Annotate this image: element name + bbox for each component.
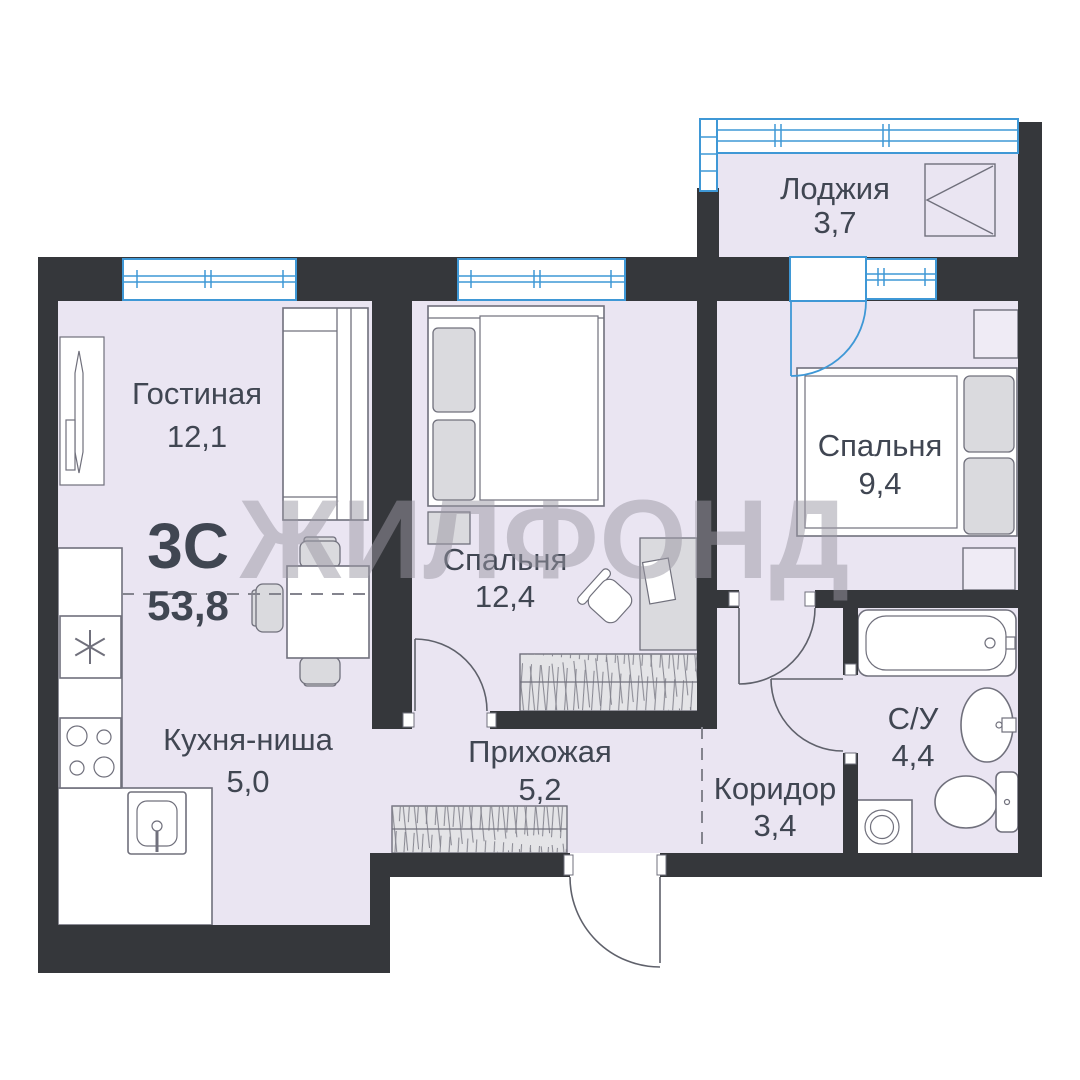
kitchen-sink-icon — [128, 792, 186, 854]
pillow-icon — [433, 328, 475, 412]
loggia-area: 3,7 — [813, 205, 856, 240]
bathroom-area: 4,4 — [891, 738, 934, 773]
washing-machine-icon — [852, 800, 912, 855]
tv-stand-icon — [66, 420, 75, 470]
living-room-label: Гостиная — [132, 376, 262, 411]
kitchen-area: 5,0 — [226, 764, 269, 799]
wall-loggia-left — [697, 188, 719, 301]
plan-total-area: 53,8 — [147, 582, 229, 629]
bathtub-icon — [858, 610, 1016, 676]
entrance-door — [564, 855, 666, 967]
hallway-area: 5,2 — [518, 772, 561, 807]
stove-icon — [60, 718, 121, 788]
loggia-glazing-left — [700, 119, 717, 191]
wall-right — [1018, 122, 1042, 877]
wall-bottom-left — [38, 925, 390, 973]
tv-icon — [75, 351, 83, 473]
hallway-wardrobe-icon — [392, 806, 567, 853]
wall-left — [38, 257, 58, 973]
balcony-window — [866, 259, 936, 299]
plan-type-label: 3С — [147, 510, 229, 582]
wall-bathroom-left-lower — [843, 753, 858, 853]
corridor-label: Коридор — [714, 771, 836, 806]
living-room-window — [123, 259, 296, 300]
loggia-glazing-top — [700, 119, 1018, 153]
hallway-label: Прихожая — [468, 734, 612, 769]
bed-icon — [428, 306, 604, 506]
bedroom2-area: 9,4 — [858, 466, 901, 501]
loggia-label: Лоджия — [780, 171, 890, 206]
chair-icon — [300, 657, 340, 684]
toilet-icon — [935, 772, 1018, 832]
bathroom-label: С/У — [888, 701, 939, 736]
nightstand-icon — [974, 310, 1018, 358]
pillow-icon — [964, 458, 1014, 534]
bedroom1-window — [458, 259, 625, 300]
pillow-icon — [964, 376, 1014, 452]
wall-bottom-right-a — [370, 853, 570, 877]
nightstand-icon — [963, 548, 1015, 590]
living-room-area: 12,1 — [167, 419, 227, 454]
wall-bedroom1-bottom — [490, 711, 697, 729]
wall-bottom-right-b — [660, 853, 1042, 877]
kitchen-label: Кухня-ниша — [163, 722, 334, 757]
floor-plan: Гостиная 12,1 3С 53,8 Кухня-ниша 5,0 Спа… — [0, 0, 1080, 1080]
bedroom2-label: Спальня — [818, 428, 943, 463]
wardrobe-icon — [520, 654, 698, 711]
fridge-icon — [60, 616, 121, 678]
corridor-area: 3,4 — [753, 808, 796, 843]
watermark: ЖИЛФОНД — [239, 477, 851, 602]
